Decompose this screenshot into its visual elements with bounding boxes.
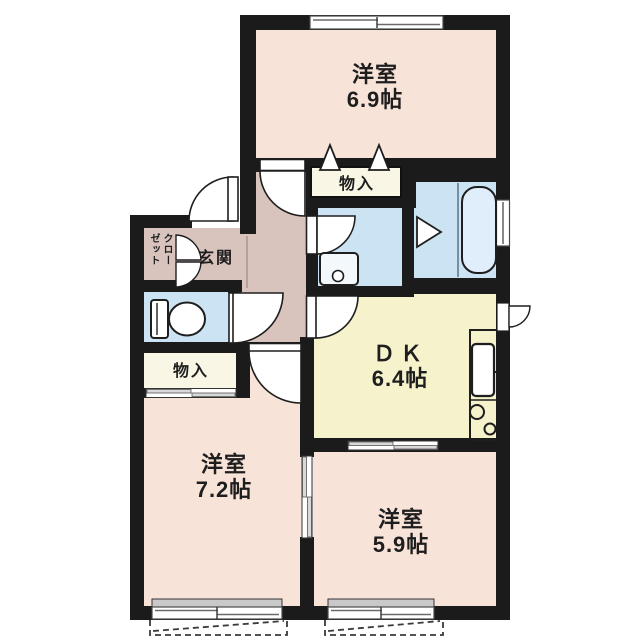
entrance-door-leaf [228, 177, 238, 221]
room-name: 物入 [339, 172, 375, 197]
wall-left [130, 215, 144, 620]
toilet-icon [151, 300, 205, 338]
room-name: 洋室 [347, 62, 404, 87]
room-name: 玄関 [198, 246, 234, 271]
label-closet: クローゼット [145, 233, 173, 275]
label-western-room-3: 洋室 5.9帖 [373, 507, 430, 557]
room-name: 洋室 [196, 452, 253, 477]
room-size: 6.9帖 [347, 87, 404, 112]
label-dk: ＤＫ 6.4帖 [372, 341, 429, 391]
wall-room2-room3-lower [300, 537, 314, 607]
floor-plan: 洋室 6.9帖 物入 玄関 クローゼット 物入 洋室 7.2帖 ＤＫ 6.4帖 … [0, 0, 640, 640]
wall-bath-bottom [402, 278, 510, 294]
label-western-room-1: 洋室 6.9帖 [347, 62, 404, 112]
room-size: 5.9帖 [373, 532, 430, 557]
room-name: 物入 [173, 359, 209, 384]
label-entrance: 玄関 [198, 246, 234, 271]
window-sill-right [328, 599, 434, 607]
room-name: 洋室 [373, 507, 430, 532]
wall-toilet-right-upper [228, 280, 241, 293]
wall-washroom-bath [402, 165, 414, 295]
kitchen-sink-icon [472, 344, 494, 396]
bathtub-icon [462, 187, 496, 273]
room-size: 7.2帖 [196, 477, 253, 502]
label-western-room-2: 洋室 7.2帖 [196, 452, 253, 502]
label-storage-left: 物入 [173, 359, 209, 384]
washroom-door-leaf [307, 216, 318, 254]
window-sill-left [152, 599, 282, 607]
washbasin-icon [320, 253, 358, 285]
service-door-gap [497, 303, 509, 331]
wall-west-room1-left [240, 15, 256, 172]
wall-corridor-b [306, 254, 318, 295]
floor-plan-drawing [0, 0, 640, 640]
room-name: ＤＫ [372, 341, 429, 366]
wall-entrance-right [240, 172, 256, 234]
label-storage-top: 物入 [339, 172, 375, 197]
room1-door-leaf [260, 160, 305, 171]
room-size: 6.4帖 [372, 366, 429, 391]
wall-bath-top [402, 165, 510, 182]
